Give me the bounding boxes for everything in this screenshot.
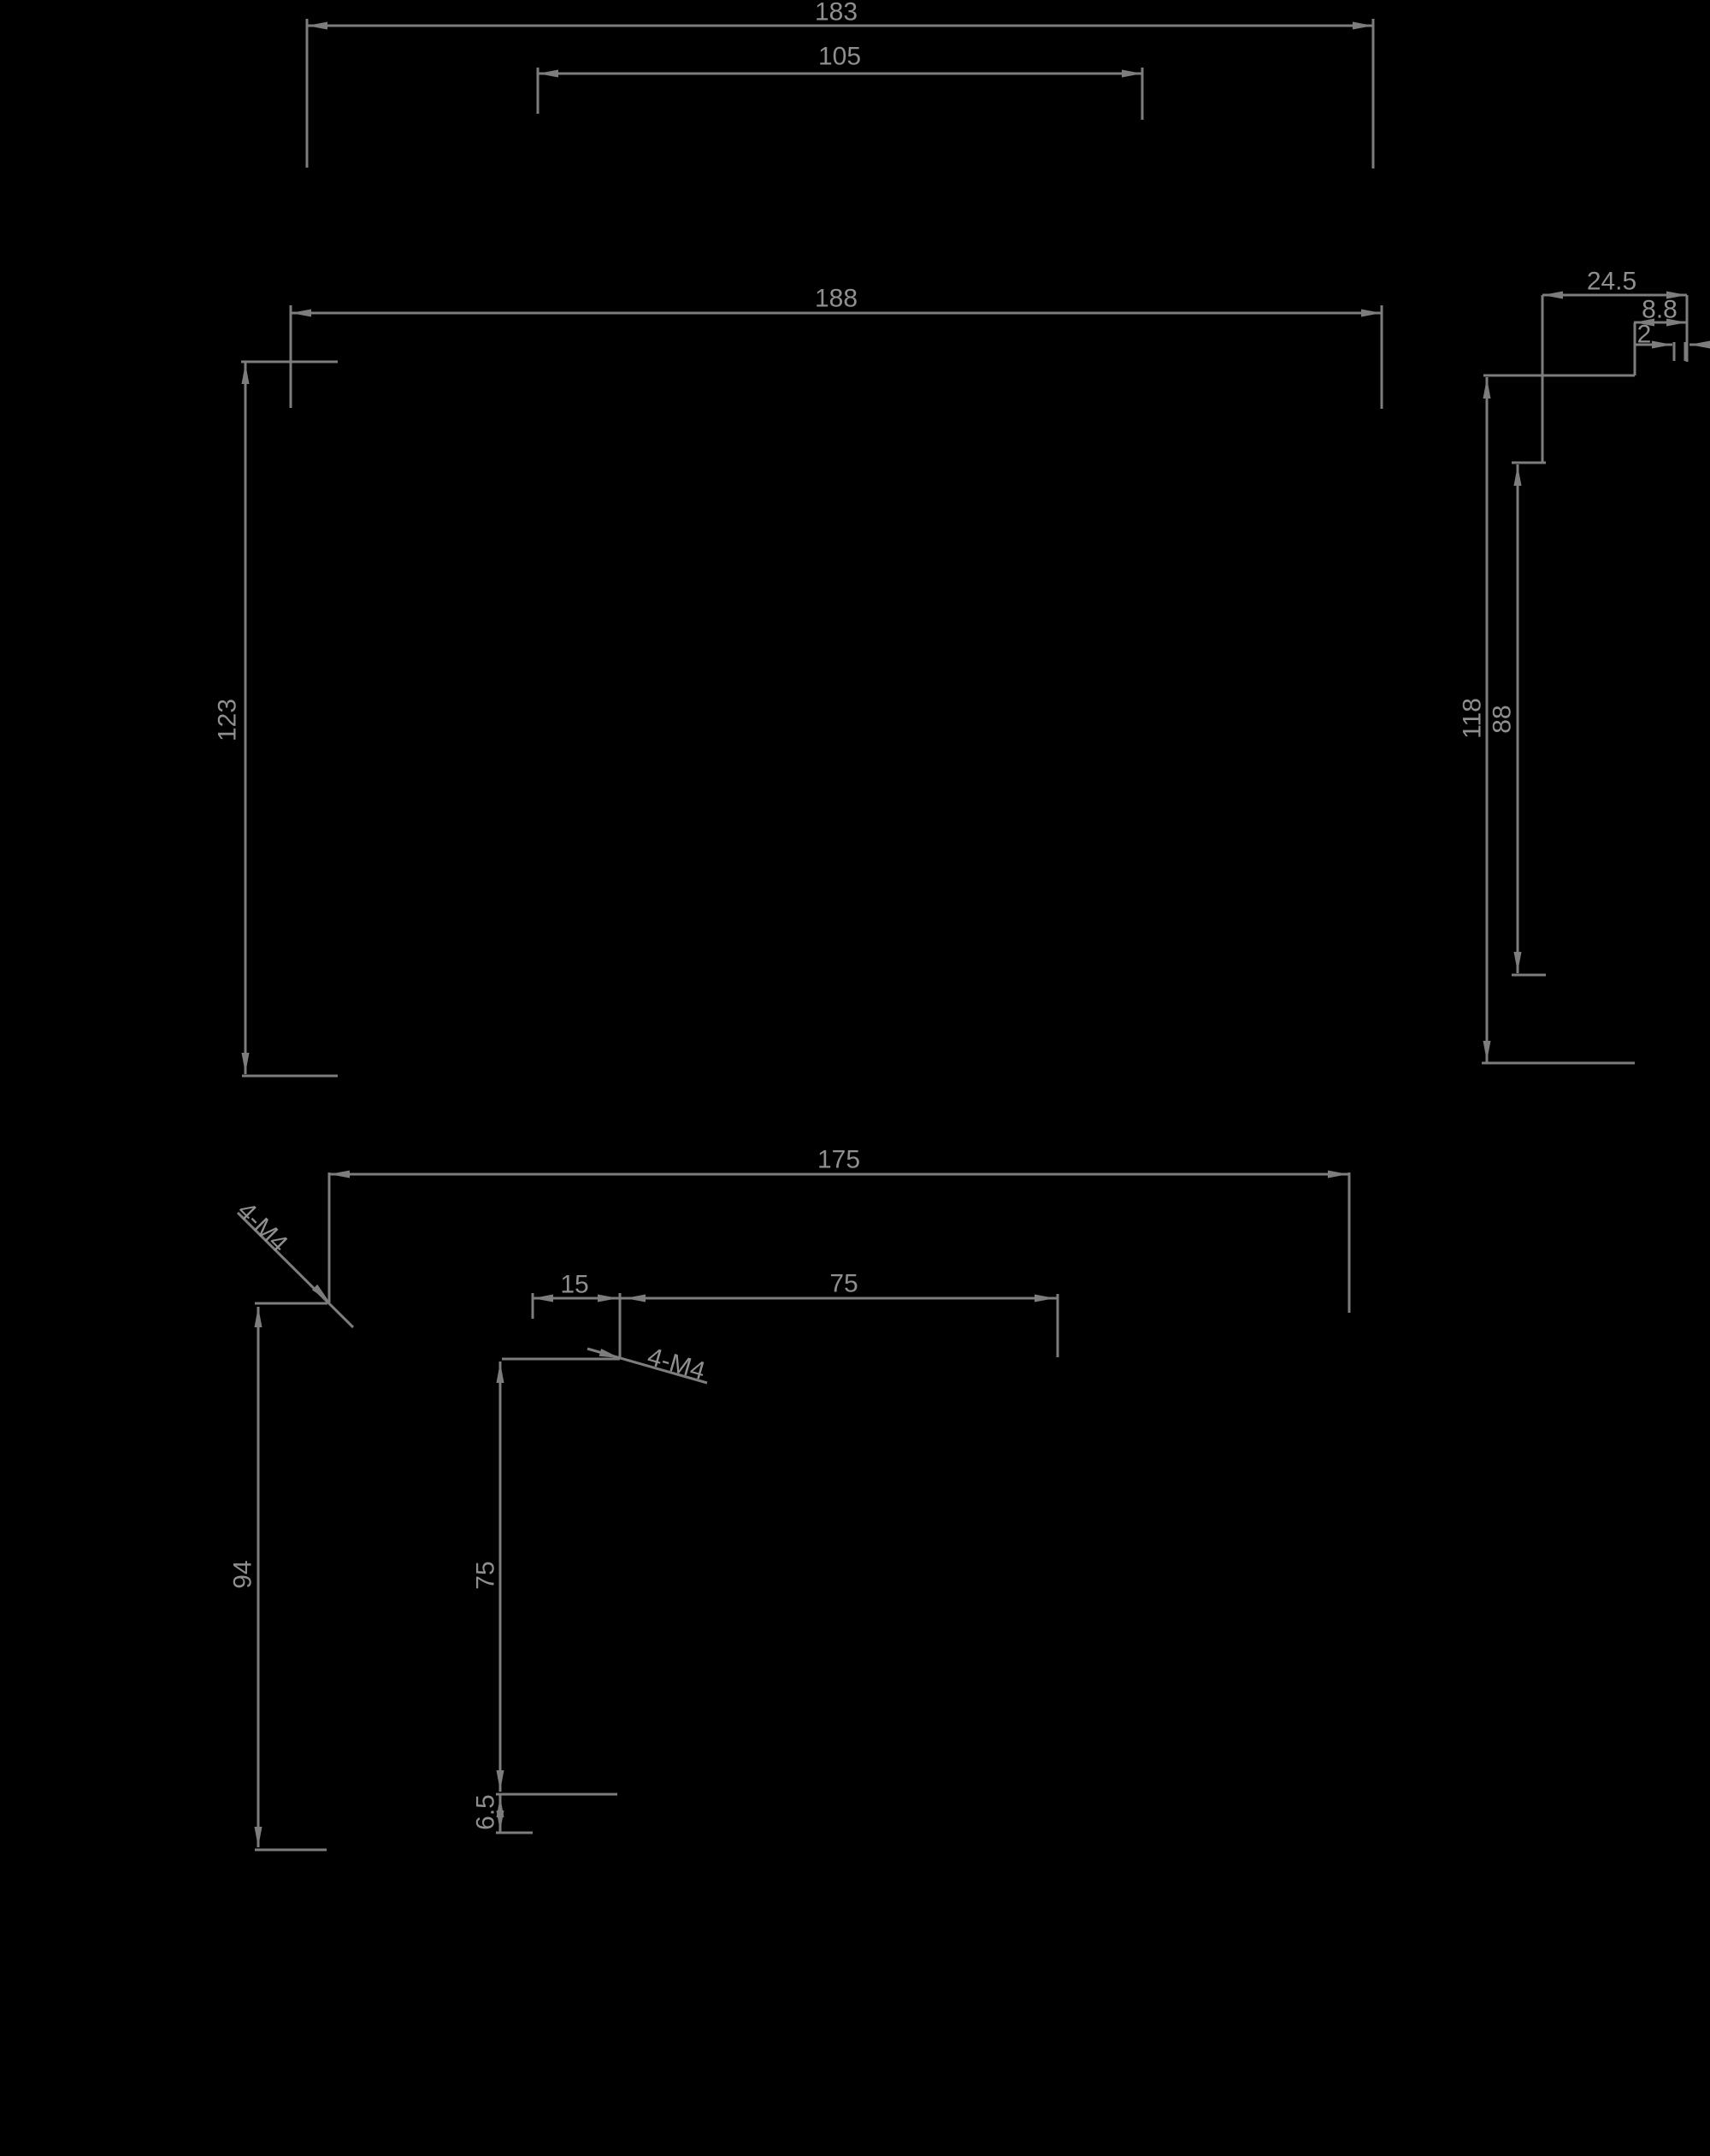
arrowhead-icon	[598, 1295, 618, 1302]
arrowhead-icon	[329, 1171, 350, 1178]
dim-label-side-depth-2: 2	[1637, 321, 1652, 349]
dim-label-bottom-span-75: 75	[829, 1270, 858, 1298]
dim-label-bottom-width-175: 175	[817, 1146, 860, 1174]
arrowhead-icon	[307, 22, 327, 30]
arrowhead-icon	[1514, 952, 1522, 972]
arrowhead-icon	[625, 1295, 646, 1302]
arrowhead-icon	[1328, 1171, 1348, 1178]
arrowhead-icon	[497, 1770, 504, 1791]
arrowhead-icon	[1361, 310, 1382, 317]
arrowhead-icon	[1689, 341, 1710, 349]
dim-label-thread-callout-1: 4-M4	[232, 1196, 293, 1258]
arrowhead-icon	[533, 1295, 553, 1302]
arrowhead-icon	[255, 1827, 262, 1847]
arrowhead-icon	[497, 1362, 504, 1383]
drawing-canvas: 18310518812324.58.82118881754-M415754-M4…	[0, 0, 1710, 2156]
dim-label-bottom-offset-6-5: 6.5	[472, 1794, 500, 1830]
arrowhead-icon	[255, 1307, 262, 1327]
arrowhead-icon	[1122, 70, 1142, 78]
dim-label-side-height-118: 118	[1459, 698, 1487, 739]
dim-label-thread-callout-2: 4-M4	[645, 1343, 709, 1386]
dim-label-bottom-offset-15: 15	[560, 1271, 588, 1299]
arrowhead-icon	[1542, 292, 1563, 299]
dim-label-bottom-height-75: 75	[472, 1561, 500, 1589]
arrowhead-icon	[1483, 1041, 1491, 1061]
arrowhead-icon	[538, 70, 558, 78]
dim-label-side-depth-24-5: 24.5	[1587, 268, 1636, 296]
arrowhead-icon	[1035, 1295, 1055, 1302]
dim-label-bottom-height-94: 94	[229, 1560, 257, 1588]
arrowhead-icon	[291, 310, 311, 317]
dim-label-side-height-88: 88	[1489, 705, 1517, 733]
dim-label-top-width-183: 183	[815, 0, 858, 27]
arrowhead-icon	[242, 1053, 250, 1073]
dim-label-front-height-123: 123	[214, 699, 242, 741]
dim-label-front-width-188: 188	[815, 285, 858, 313]
arrowhead-icon	[1514, 465, 1522, 486]
arrowhead-icon	[242, 363, 250, 384]
dim-label-top-width-105: 105	[818, 43, 861, 71]
arrowhead-icon	[1483, 378, 1491, 399]
dimension-drawing: 18310518812324.58.82118881754-M415754-M4…	[0, 0, 1710, 2156]
arrowhead-icon	[1353, 22, 1373, 30]
arrowhead-icon	[1652, 341, 1672, 349]
